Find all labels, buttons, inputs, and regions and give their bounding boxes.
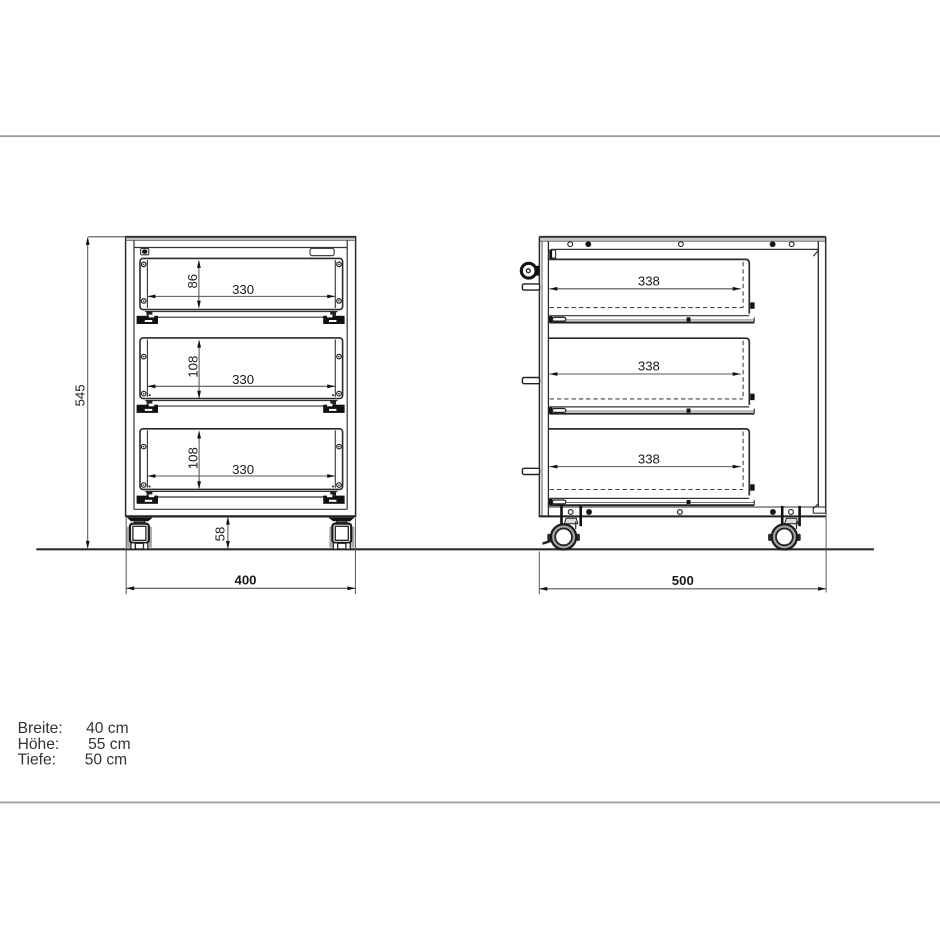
svg-text:40 cm: 40 cm [86, 720, 128, 737]
svg-text:338: 338 [638, 451, 660, 466]
svg-text:330: 330 [232, 282, 254, 297]
svg-text:545: 545 [73, 384, 88, 406]
svg-text:Tiefe:: Tiefe: [18, 752, 56, 769]
svg-text:330: 330 [232, 372, 254, 387]
svg-text:50 cm: 50 cm [85, 752, 127, 769]
svg-text:108: 108 [185, 356, 200, 378]
svg-text:Höhe:: Höhe: [18, 736, 60, 753]
svg-text:400: 400 [234, 573, 256, 588]
svg-text:86: 86 [185, 274, 200, 289]
svg-text:338: 338 [638, 359, 660, 374]
svg-text:58: 58 [212, 527, 227, 542]
svg-text:Breite:: Breite: [18, 720, 63, 737]
svg-text:108: 108 [185, 447, 200, 469]
svg-text:330: 330 [232, 462, 254, 477]
svg-text:500: 500 [672, 573, 694, 588]
svg-text:338: 338 [638, 274, 660, 289]
svg-text:55 cm: 55 cm [88, 736, 130, 753]
